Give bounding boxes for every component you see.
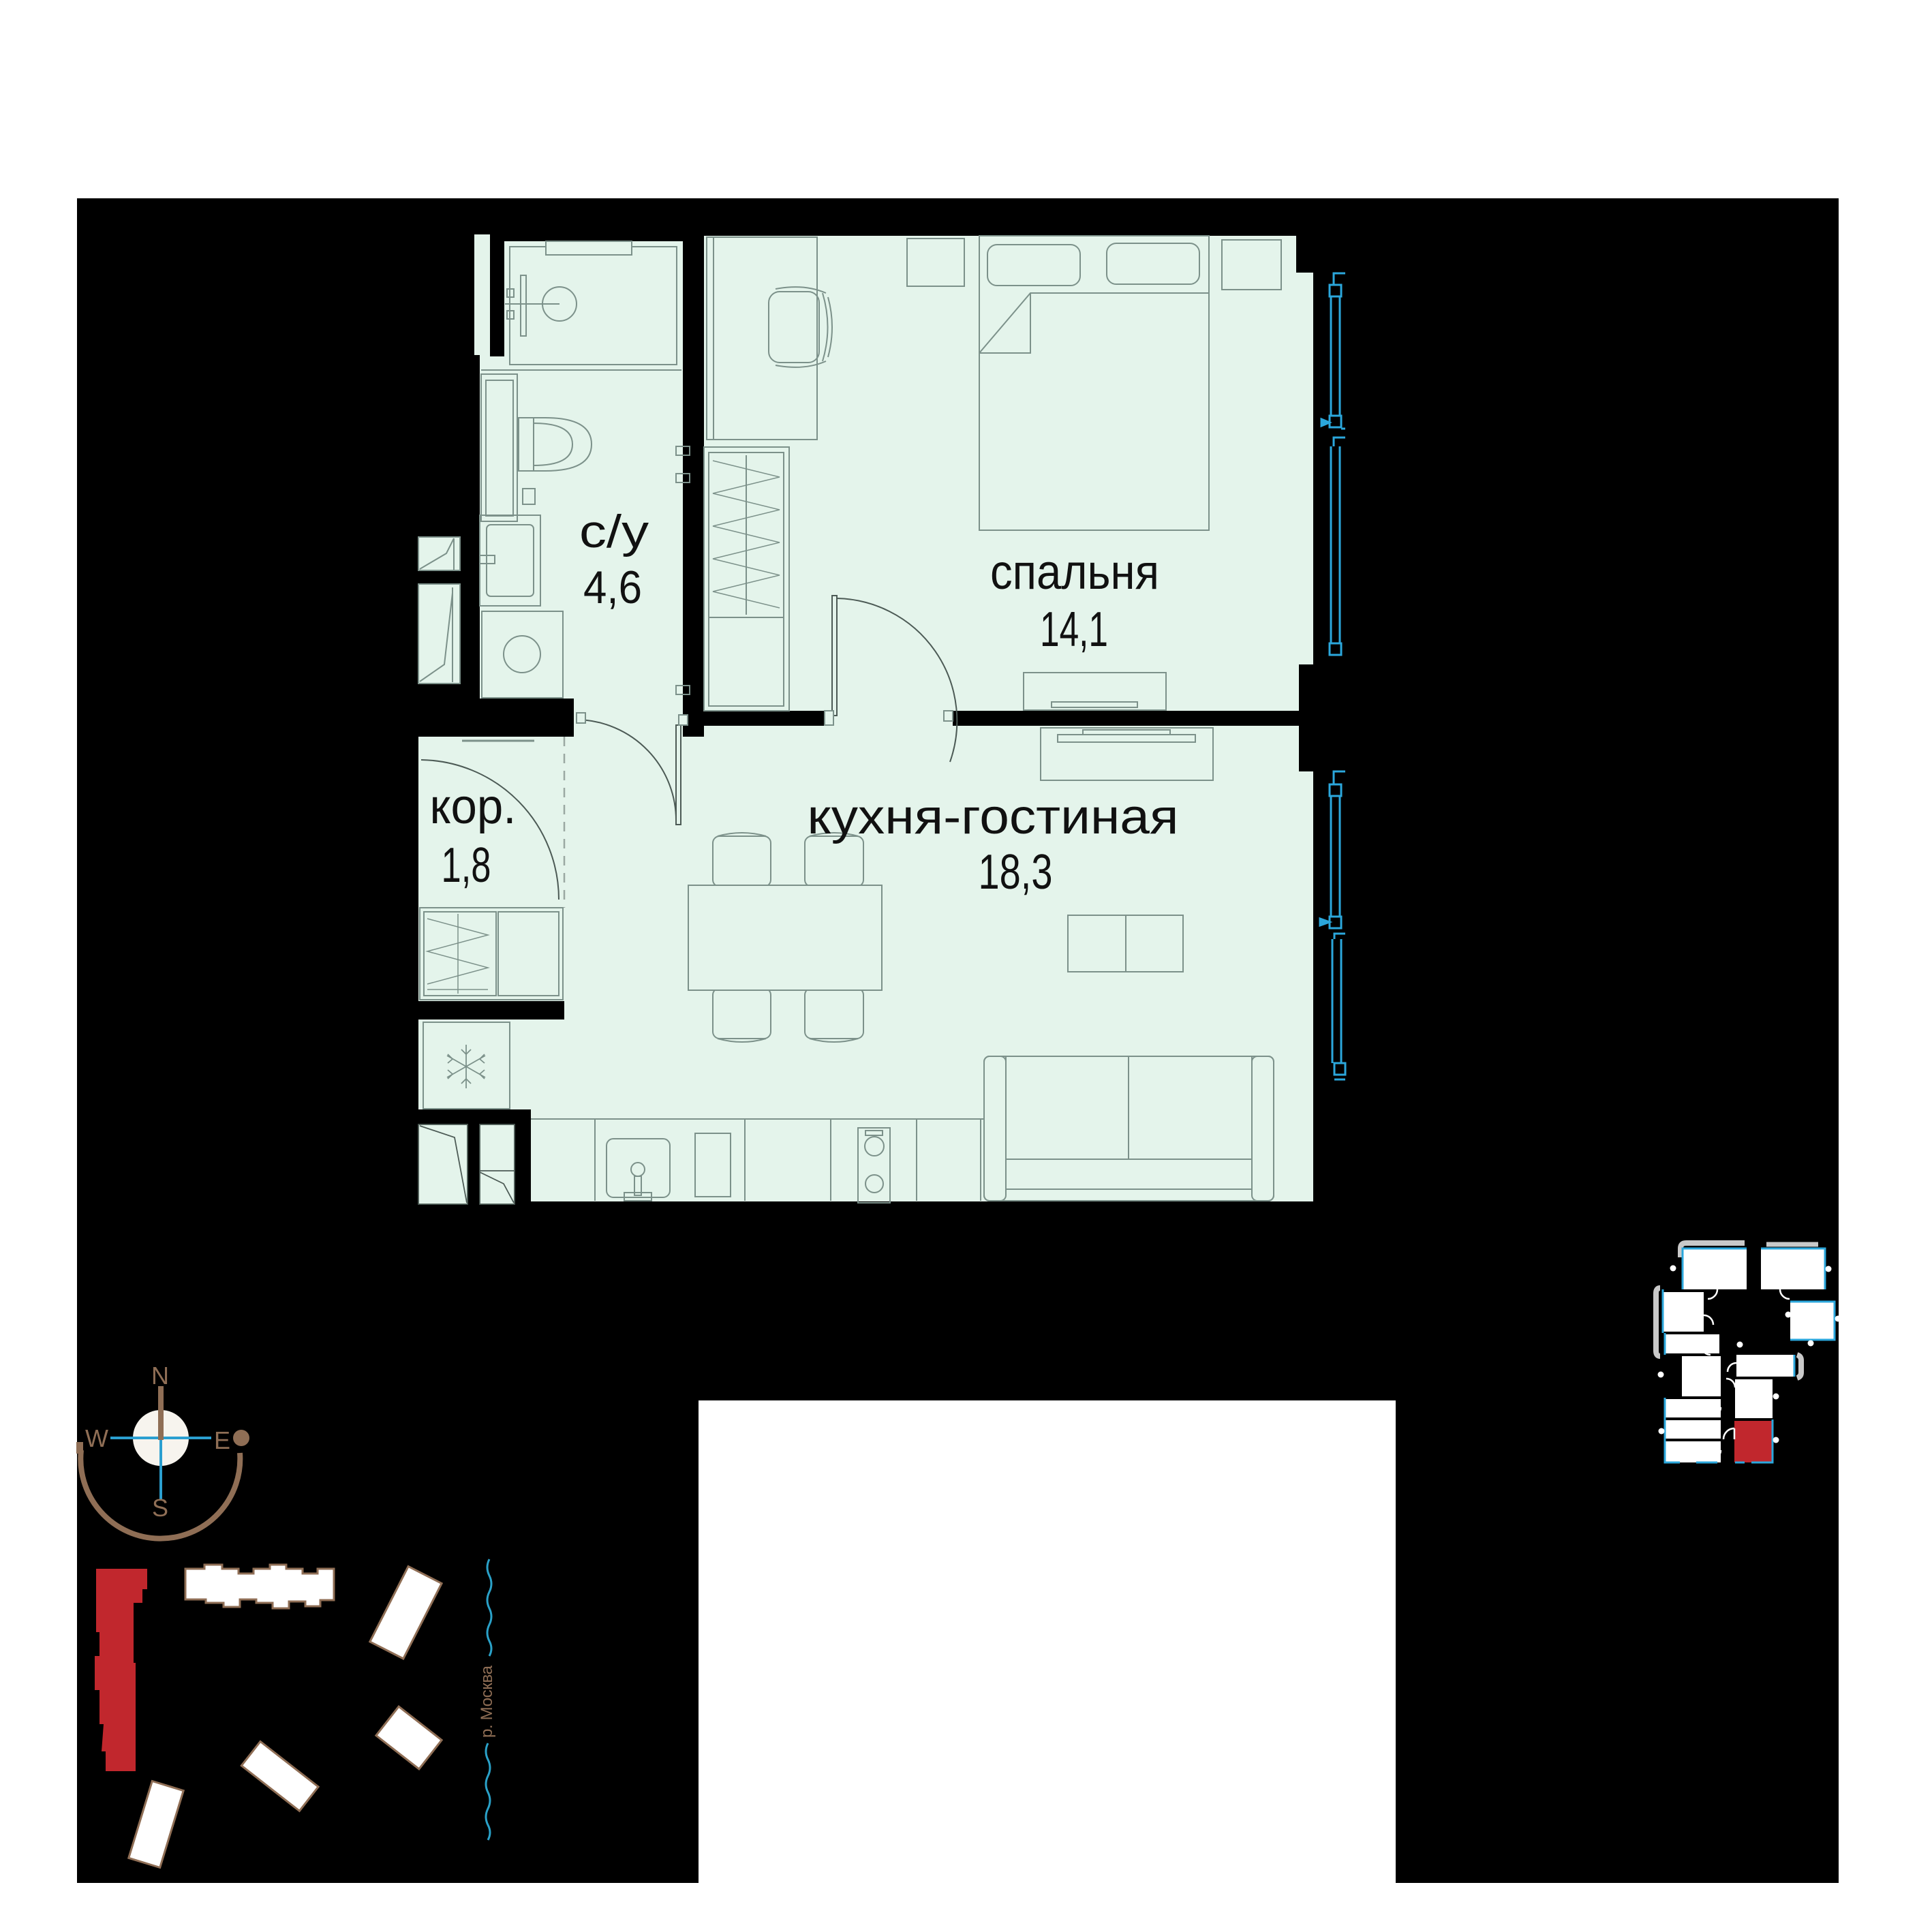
svg-text:р. Москва: р. Москва [478,1665,496,1738]
svg-text:кор.: кор. [430,780,517,834]
svg-text:14,1: 14,1 [1040,602,1108,657]
svg-text:N: N [151,1362,169,1390]
svg-text:E: E [214,1426,230,1454]
svg-text:4,6: 4,6 [583,562,642,613]
svg-text:S: S [152,1494,168,1522]
svg-text:18,3: 18,3 [979,845,1053,900]
svg-text:1,8: 1,8 [442,838,491,893]
svg-text:кухня-гостиная: кухня-гостиная [808,790,1179,844]
svg-text:W: W [85,1424,108,1452]
svg-text:спальня: спальня [990,545,1159,600]
svg-text:с/у: с/у [579,506,649,557]
